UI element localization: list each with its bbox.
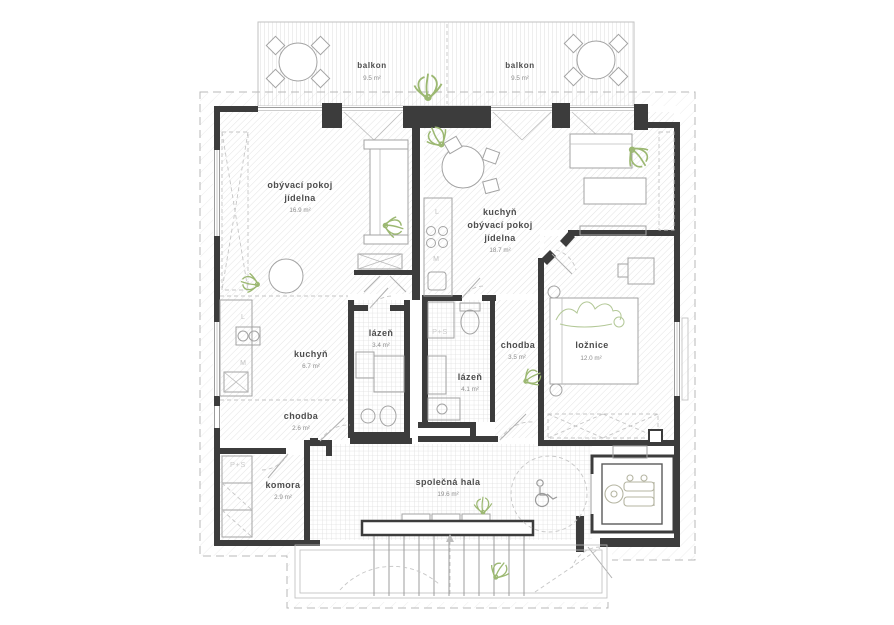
sofa-right-living — [570, 134, 632, 168]
room-label-living-left-2: jídelna — [283, 193, 316, 203]
area-label-bath-left: 3.4 m² — [372, 342, 390, 349]
area-label-hallway-left: 2.6 m² — [292, 425, 310, 432]
column — [649, 430, 662, 443]
appliance-label-washer-storage: P+S — [230, 460, 246, 469]
balcony-deck — [200, 22, 695, 106]
room-label-balcony-left: balkon — [357, 61, 386, 70]
area-label-hallway-right: 3.5 m² — [508, 354, 526, 361]
room-label-storage: komora — [266, 480, 302, 490]
room-label-balcony-right: balkon — [505, 61, 534, 70]
room-bath-right-floor — [428, 300, 490, 422]
appliance-label-fridge-left: L — [241, 314, 245, 321]
area-label-common-hall: 19.6 m² — [437, 491, 458, 498]
area-label-living-left: 16.9 m² — [289, 207, 310, 214]
room-label-bath-right: lázeň — [458, 372, 483, 382]
room-label-living-right-3: jídelna — [483, 233, 516, 243]
window-left-living — [213, 150, 221, 236]
room-label-bath-left: lázeň — [369, 328, 394, 338]
area-label-balcony-left: 9.5 m² — [363, 75, 381, 82]
floor-plan-drawing: balkon 9.5 m² balkon 9.5 m² obývací poko… — [0, 0, 894, 625]
floor-plan: balkon 9.5 m² balkon 9.5 m² obývací poko… — [0, 0, 894, 625]
room-label-bedroom: ložnice — [575, 340, 608, 350]
coffee-table-right — [584, 178, 646, 204]
room-label-hallway-left: chodba — [284, 411, 319, 421]
room-label-common-hall: společná hala — [416, 477, 481, 487]
area-label-storage: 2.9 m² — [274, 494, 292, 501]
room-label-hallway-right: chodba — [501, 340, 536, 350]
room-label-living-right-1: kuchyň — [483, 207, 517, 217]
area-label-balcony-right: 9.5 m² — [511, 75, 529, 82]
room-label-kitchen-left: kuchyň — [294, 349, 328, 359]
stair-landing — [362, 521, 533, 535]
area-label-living-right: 18.7 m² — [489, 247, 510, 254]
window-left-hallway — [213, 406, 221, 428]
appliance-label-dishwasher-left: M — [240, 360, 246, 367]
appliance-label-washer-bath: P+S — [432, 327, 448, 336]
room-label-living-right-2: obývací pokoj — [467, 220, 532, 230]
area-label-bedroom: 12.0 m² — [580, 355, 601, 362]
appliance-label-dishwasher-right: M — [433, 256, 439, 263]
room-label-living-left-1: obývací pokoj — [267, 180, 332, 190]
area-label-kitchen-left: 6.7 m² — [302, 363, 320, 370]
area-label-bath-right: 4.1 m² — [461, 386, 479, 393]
dining-table-left — [269, 259, 303, 293]
room-hallway-right-floor — [495, 300, 540, 438]
appliance-label-fridge-right: L — [435, 209, 439, 216]
